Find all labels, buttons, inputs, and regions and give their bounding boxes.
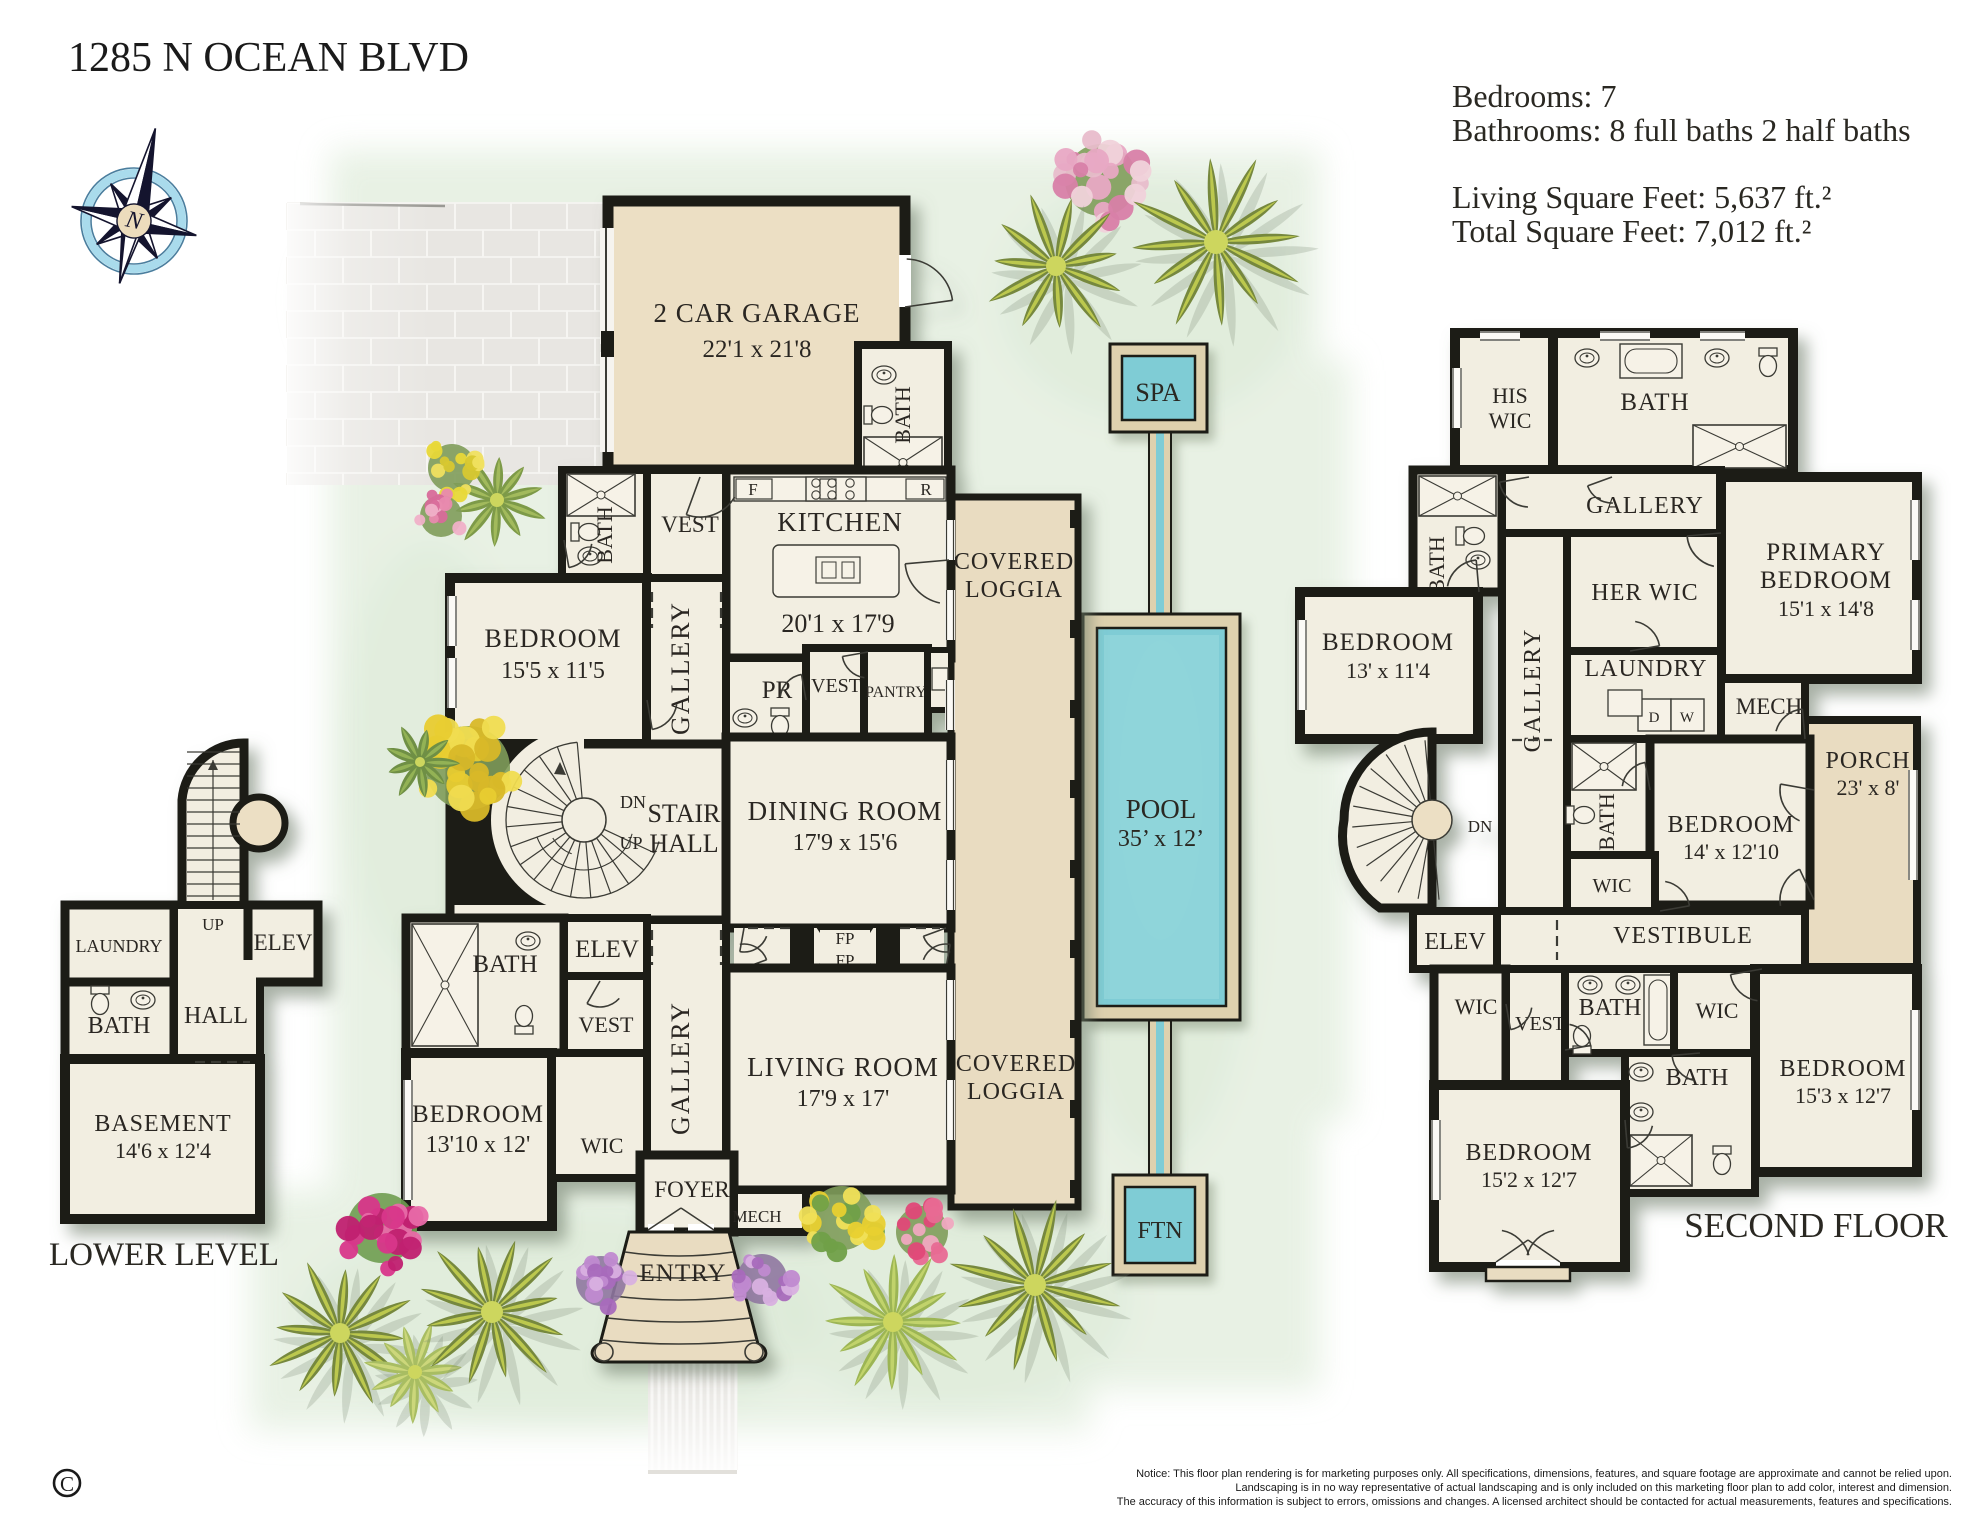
svg-text:KITCHEN: KITCHEN: [777, 507, 902, 537]
svg-text:LIVING ROOM: LIVING ROOM: [747, 1052, 939, 1082]
svg-text:23' x 8': 23' x 8': [1837, 775, 1900, 800]
svg-text:PRIMARY: PRIMARY: [1766, 539, 1886, 566]
svg-text:C: C: [60, 1472, 74, 1496]
svg-text:Total Square Feet: 7,012 ft.²: Total Square Feet: 7,012 ft.²: [1452, 213, 1811, 249]
svg-text:UP: UP: [202, 915, 224, 934]
svg-text:BATH: BATH: [592, 506, 617, 564]
svg-text:GALLERY: GALLERY: [1586, 493, 1704, 519]
svg-text:BEDROOM: BEDROOM: [1779, 1056, 1906, 1082]
svg-text:14' x 12'10: 14' x 12'10: [1683, 839, 1779, 864]
svg-text:VESTIBULE: VESTIBULE: [1613, 923, 1753, 949]
svg-text:BATH: BATH: [472, 951, 537, 978]
svg-text:LAUNDRY: LAUNDRY: [75, 936, 162, 956]
svg-text:GALLERY: GALLERY: [1520, 628, 1546, 753]
svg-text:ENTRY: ENTRY: [640, 1260, 727, 1287]
svg-text:Living Square Feet: 5,637 ft.²: Living Square Feet: 5,637 ft.²: [1452, 179, 1831, 215]
svg-text:17'9 x 15'6: 17'9 x 15'6: [793, 830, 898, 856]
svg-text:MECH: MECH: [732, 1207, 781, 1226]
svg-text:SPA: SPA: [1135, 378, 1181, 407]
svg-text:FP: FP: [836, 929, 855, 948]
svg-text:DINING ROOM: DINING ROOM: [748, 796, 943, 826]
svg-text:The accuracy of this informati: The accuracy of this information is subj…: [1117, 1496, 1952, 1508]
svg-text:2 CAR GARAGE: 2 CAR GARAGE: [653, 298, 860, 328]
svg-text:MECH: MECH: [1736, 694, 1802, 719]
svg-text:STAIR: STAIR: [647, 799, 721, 828]
svg-text:20'1 x 17'9: 20'1 x 17'9: [781, 609, 894, 638]
svg-text:13' x 11'4: 13' x 11'4: [1346, 658, 1430, 683]
svg-text:HALL: HALL: [184, 1003, 248, 1029]
svg-text:BEDROOM: BEDROOM: [1667, 812, 1794, 838]
svg-text:BATH: BATH: [1620, 389, 1689, 416]
svg-text:BATH: BATH: [88, 1013, 151, 1039]
svg-text:17'9 x 17': 17'9 x 17': [797, 1086, 890, 1112]
svg-text:UP: UP: [619, 833, 642, 853]
svg-text:PORCH: PORCH: [1825, 748, 1910, 774]
svg-text:SECOND FLOOR: SECOND FLOOR: [1684, 1206, 1948, 1245]
svg-text:LOGGIA: LOGGIA: [967, 1079, 1065, 1105]
svg-text:Bathrooms: 8 full baths 2 half: Bathrooms: 8 full baths 2 half baths: [1452, 112, 1911, 148]
svg-text:VEST: VEST: [811, 675, 861, 697]
svg-text:ELEV: ELEV: [1424, 929, 1486, 955]
svg-text:HER WIC: HER WIC: [1591, 580, 1698, 606]
svg-text:ELEV: ELEV: [575, 936, 639, 963]
svg-text:BASEMENT: BASEMENT: [94, 1111, 231, 1137]
svg-text:LOWER LEVEL: LOWER LEVEL: [49, 1237, 279, 1273]
svg-text:BEDROOM: BEDROOM: [412, 1101, 544, 1128]
svg-text:VEST: VEST: [579, 1012, 635, 1037]
svg-text:35’ x 12’: 35’ x 12’: [1118, 826, 1204, 852]
svg-text:BEDROOM: BEDROOM: [1465, 1140, 1592, 1166]
svg-text:15'2 x 12'7: 15'2 x 12'7: [1481, 1167, 1577, 1192]
svg-text:15'3 x 12'7: 15'3 x 12'7: [1795, 1083, 1891, 1108]
svg-text:D: D: [1649, 710, 1660, 726]
svg-text:COVERED: COVERED: [956, 1051, 1076, 1077]
svg-text:COVERED: COVERED: [954, 549, 1074, 575]
svg-text:DN: DN: [620, 792, 646, 812]
svg-text:WIC: WIC: [1489, 408, 1532, 433]
svg-text:FTN: FTN: [1137, 1218, 1182, 1244]
svg-text:FOYER: FOYER: [654, 1177, 730, 1202]
svg-text:LAUNDRY: LAUNDRY: [1584, 656, 1707, 682]
svg-text:BEDROOM: BEDROOM: [1760, 567, 1892, 594]
svg-text:Bedrooms: 7: Bedrooms: 7: [1452, 78, 1616, 114]
svg-text:15'1 x 14'8: 15'1 x 14'8: [1778, 596, 1874, 621]
svg-text:BATH: BATH: [890, 386, 915, 444]
svg-text:BATH: BATH: [1579, 995, 1642, 1021]
svg-text:F: F: [748, 480, 757, 499]
svg-text:GALLERY: GALLERY: [666, 1001, 695, 1135]
svg-text:BATH: BATH: [1594, 793, 1619, 851]
svg-text:GALLERY: GALLERY: [666, 601, 695, 735]
svg-text:DN: DN: [1468, 817, 1493, 836]
svg-text:BEDROOM: BEDROOM: [1322, 629, 1454, 656]
svg-text:WIC: WIC: [1455, 994, 1498, 1019]
svg-text:POOL: POOL: [1126, 794, 1197, 824]
svg-text:R: R: [920, 480, 932, 499]
svg-text:13'10 x 12': 13'10 x 12': [426, 1132, 531, 1158]
svg-text:15'5 x 11'5: 15'5 x 11'5: [501, 658, 605, 684]
svg-text:W: W: [1680, 710, 1695, 726]
svg-text:14'6 x 12'4: 14'6 x 12'4: [115, 1138, 211, 1163]
svg-text:ELEV: ELEV: [254, 930, 313, 955]
svg-text:BEDROOM: BEDROOM: [484, 624, 621, 653]
svg-text:22'1 x 21'8: 22'1 x 21'8: [702, 336, 811, 363]
svg-text:HALL: HALL: [649, 829, 718, 858]
svg-text:WIC: WIC: [581, 1133, 624, 1158]
svg-text:BATH: BATH: [1424, 536, 1449, 594]
svg-text:HIS: HIS: [1492, 383, 1527, 408]
svg-text:WIC: WIC: [1593, 875, 1632, 897]
svg-text:1285 N OCEAN BLVD: 1285 N OCEAN BLVD: [68, 35, 469, 81]
svg-text:LOGGIA: LOGGIA: [965, 577, 1063, 603]
svg-text:PANTRY: PANTRY: [865, 684, 927, 701]
svg-text:Landscaping is in no way repre: Landscaping is in no way representative …: [1235, 1482, 1952, 1494]
svg-text:BATH: BATH: [1666, 1065, 1729, 1091]
svg-text:WIC: WIC: [1696, 998, 1739, 1023]
svg-text:Notice: This floor plan rende: Notice: This floor plan rendering is for…: [1136, 1468, 1952, 1480]
